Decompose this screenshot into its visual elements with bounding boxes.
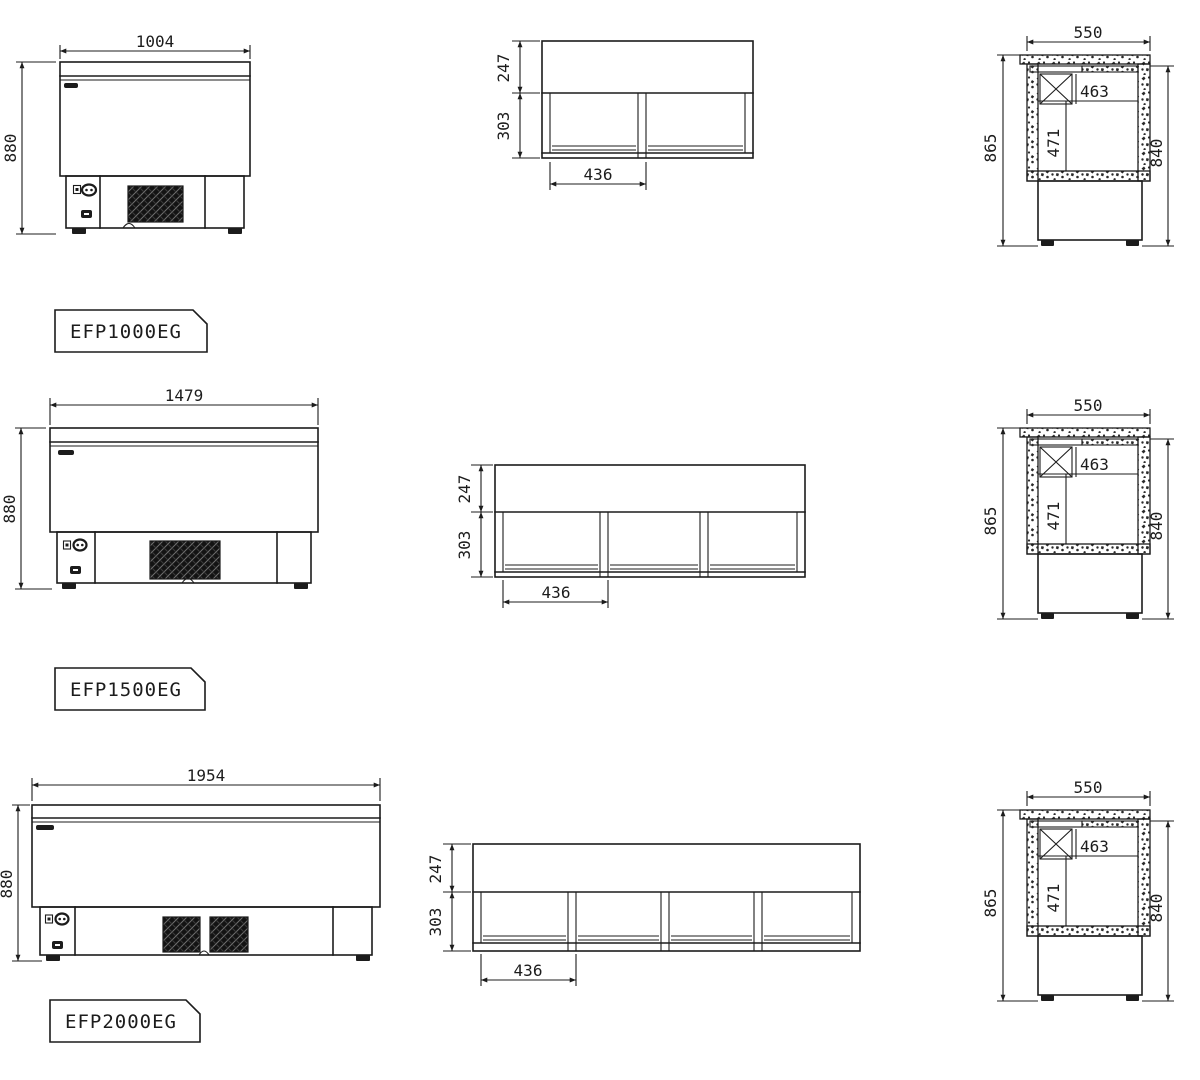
dim-inner-width-text: 463 [1080, 82, 1109, 101]
dim-lid-depth-text: 247 [426, 855, 445, 884]
dim-well-depth: 303 [455, 512, 493, 577]
front-view-efp1000eg: 1004 880 [1, 32, 250, 234]
side-section-view [981, 396, 1174, 619]
brand-logo [36, 825, 54, 830]
dim-overall-width: 1954 [32, 766, 380, 801]
dim-basket-width-text: 436 [584, 165, 613, 184]
dim-basket-width: 436 [481, 954, 576, 986]
dim-overall-width-text: 1004 [136, 32, 175, 51]
row-efp2000eg: 1954 880 [0, 766, 1174, 1042]
dim-overall-depth: 550 [1027, 23, 1150, 51]
evaporator-section [1040, 74, 1076, 104]
front-view-efp1500eg: 1479 880 [0, 386, 318, 589]
model-label-text: EFP1500EG [70, 679, 182, 701]
control-panel [64, 540, 87, 575]
brand-logo [64, 83, 78, 88]
foot [356, 955, 370, 961]
side-section-view: 463 471 550 865 [981, 23, 1174, 246]
dim-basket-width: 436 [550, 162, 646, 190]
dim-overall-width-text: 1954 [187, 766, 226, 785]
ventilation-grille [128, 186, 183, 222]
dim-overall-depth-text: 550 [1074, 23, 1103, 42]
foot [228, 228, 242, 234]
dim-overall-width-text: 1479 [165, 386, 204, 405]
dim-overall-height-text: 880 [0, 495, 19, 524]
dim-overall-height-text: 880 [1, 134, 20, 163]
dim-inner-depth: 471 [1044, 101, 1066, 171]
foot [72, 228, 86, 234]
dim-basket-width-text: 436 [542, 583, 571, 602]
foot [294, 583, 308, 589]
dim-well-depth-text: 303 [426, 908, 445, 937]
dim-lid-depth-text: 247 [494, 54, 513, 83]
dim-overall-height: 880 [0, 805, 42, 961]
model-label-efp1000eg: EFP1000EG [55, 310, 207, 352]
foot [46, 955, 60, 961]
plan-view-efp1500eg: 247 303 436 [455, 465, 805, 608]
control-panel [46, 914, 69, 950]
dim-basket-width-text: 436 [514, 961, 543, 980]
dim-lid-depth-text: 247 [455, 475, 474, 504]
model-label-efp2000eg: EFP2000EG [50, 1000, 200, 1042]
dim-well-depth-text: 303 [455, 531, 474, 560]
dim-lid-depth: 247 [494, 41, 540, 93]
dim-basket-width: 436 [503, 580, 608, 608]
row-efp1500eg: 1479 880 [0, 386, 1174, 710]
plan-view-efp2000eg: 247 303 436 [426, 844, 860, 986]
model-label-efp1500eg: EFP1500EG [55, 668, 205, 710]
row-efp1000eg: 1004 880 [1, 23, 1174, 352]
dim-well-depth-text: 303 [494, 112, 513, 141]
dim-overall-width: 1479 [50, 386, 318, 425]
ventilation-grille [163, 917, 200, 952]
foot [62, 583, 76, 589]
front-view-efp2000eg: 1954 880 [0, 766, 380, 961]
ventilation-grille [150, 541, 220, 579]
foot [1126, 240, 1139, 246]
ventilation-grille [210, 917, 248, 952]
control-panel [74, 185, 97, 219]
dim-lid-depth: 247 [455, 465, 493, 512]
foot [1041, 240, 1054, 246]
model-label-text: EFP2000EG [65, 1011, 177, 1033]
plan-view-efp1000eg: 247 303 436 [494, 41, 753, 190]
dim-inner-depth-text: 471 [1044, 129, 1063, 158]
dim-overall-width: 1004 [60, 32, 250, 59]
dim-well-depth: 303 [494, 93, 540, 158]
drawing-canvas: 1004 880 [0, 0, 1200, 1080]
dim-body-height-text: 840 [1147, 139, 1166, 168]
technical-drawing-sheet: 1004 880 [0, 0, 1200, 1080]
model-label-text: EFP1000EG [70, 321, 182, 343]
dim-well-depth: 303 [426, 892, 471, 951]
dim-overall-height-text: 880 [0, 870, 16, 899]
dim-height-with-lid-text: 865 [981, 134, 1000, 163]
side-section-view [981, 778, 1174, 1001]
brand-logo [58, 450, 74, 455]
dim-lid-depth: 247 [426, 844, 471, 892]
dim-overall-height: 880 [0, 428, 52, 589]
dim-overall-height: 880 [1, 62, 56, 234]
